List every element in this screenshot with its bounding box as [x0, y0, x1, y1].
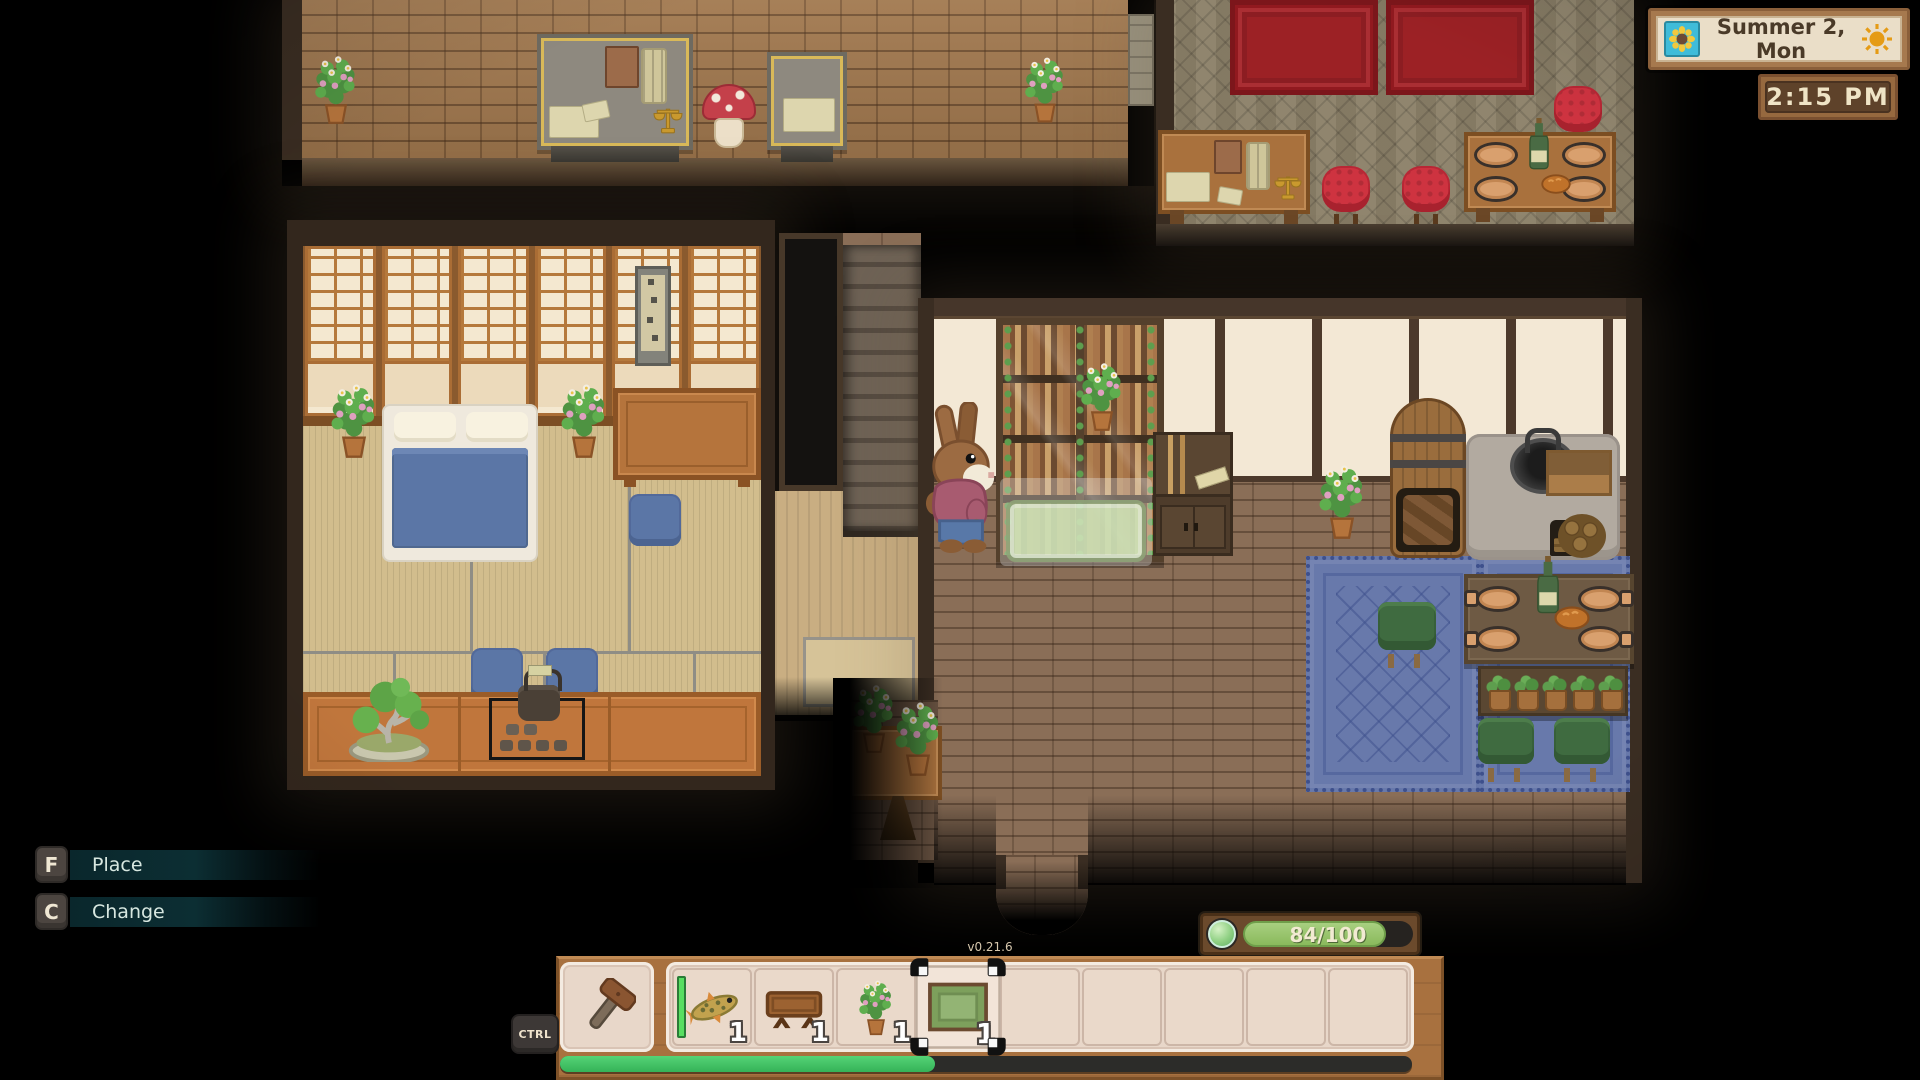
ctrl-key: CTRL — [511, 1014, 559, 1054]
tea-cups — [500, 740, 513, 751]
cup — [1464, 590, 1479, 607]
shoji-lower — [461, 364, 526, 407]
exit-doorway[interactable] — [996, 855, 1088, 935]
stool-cushion — [1402, 166, 1450, 212]
tool-slot[interactable] — [560, 962, 654, 1052]
flower-pot-plant — [1316, 438, 1368, 564]
selection-corner — [910, 958, 928, 976]
progress-fill — [560, 1056, 935, 1072]
red-rug — [1230, 0, 1378, 95]
flower-pot-plant — [892, 688, 944, 788]
mushroom-decoration — [702, 84, 756, 150]
hotbar-slot-6[interactable] — [1082, 968, 1162, 1046]
potted-herb — [1487, 675, 1509, 711]
ledger-book — [605, 46, 639, 88]
loose-paper — [581, 99, 610, 122]
scroll-paper — [641, 275, 665, 351]
bedroom-interior — [303, 246, 761, 776]
barrel-hoop — [1390, 434, 1466, 442]
mushroom-stem — [714, 118, 744, 148]
shoji-lower — [385, 364, 450, 407]
date-panel: Summer 2, Mon — [1648, 8, 1910, 70]
potted-herb — [1571, 675, 1593, 711]
low-table-seam — [608, 697, 611, 771]
scroll-desk — [1158, 130, 1310, 214]
hotbar-slot-3[interactable]: 1 — [836, 968, 916, 1046]
loose-paper — [1217, 186, 1243, 206]
herb-shelf — [1478, 666, 1628, 716]
balance-scale-icon — [653, 104, 683, 138]
stool-cushion — [1554, 86, 1602, 132]
blue-rug — [1306, 556, 1480, 792]
rug-placement-preview[interactable] — [1000, 478, 1152, 566]
library-floor-strip — [302, 158, 1128, 186]
side-cabinet — [1153, 432, 1233, 556]
barrel-hoop — [1390, 460, 1466, 468]
bed-blanket — [392, 448, 528, 548]
energy-bar: 84/100 — [1200, 913, 1420, 955]
staircase — [843, 245, 921, 537]
shoji-panel — [458, 246, 529, 416]
flower-pot-plant — [850, 672, 898, 764]
dining-floor-edge — [1156, 224, 1634, 246]
display-case-artifacts — [537, 34, 693, 150]
bed — [382, 404, 538, 562]
shoji-lattice — [691, 249, 756, 364]
cup — [1619, 590, 1634, 607]
scroll-rolls — [1246, 142, 1270, 190]
stone-stove — [1466, 434, 1620, 560]
shoji-panel — [382, 246, 453, 416]
bed-pillow — [466, 412, 528, 442]
bread-icon — [1554, 606, 1590, 630]
open-book — [783, 98, 835, 132]
slot-quantity: 1 — [893, 1018, 911, 1048]
bed-pillow — [394, 412, 456, 442]
room-main — [918, 298, 1642, 883]
potted-herb — [1515, 675, 1537, 711]
flower-pot-plant — [558, 366, 610, 474]
stool-cushion — [1478, 718, 1534, 764]
green-chair — [1378, 602, 1436, 668]
corridor — [775, 233, 923, 715]
selection-corner — [988, 958, 1006, 976]
keybind-key-f: F — [35, 846, 68, 883]
red-stool — [1402, 166, 1450, 226]
wine-bottle-icon — [1528, 118, 1550, 170]
shoji-lattice — [308, 249, 373, 364]
hotbar-slot-5[interactable] — [1000, 968, 1080, 1046]
dresser-panel — [626, 401, 748, 467]
stool-cushion — [1322, 166, 1370, 212]
potted-herb — [1543, 675, 1565, 711]
scroll-rolls — [641, 48, 667, 104]
hotbar-slot-7[interactable] — [1164, 968, 1244, 1046]
shoji-lattice — [538, 249, 603, 364]
flower-pot-plant — [1022, 36, 1068, 142]
durability-bar — [677, 976, 686, 1038]
wooden-dresser — [613, 388, 761, 480]
cabinet-doors — [1160, 505, 1226, 549]
flower-pot-plant — [1078, 356, 1126, 436]
hotbar-slot-panel: 1 1 1 1 — [666, 962, 1414, 1052]
main-wall-top-band — [934, 298, 1626, 316]
display-case-book — [767, 52, 847, 150]
firewood-pile — [1558, 514, 1606, 558]
keybind-action-change: Change — [70, 897, 320, 927]
bread-icon — [1540, 174, 1572, 194]
barrel-opening — [1396, 488, 1460, 552]
hotbar-slot-9[interactable] — [1328, 968, 1408, 1046]
cabinet-bamboo-art — [1156, 435, 1230, 497]
chair-cushion — [1378, 602, 1436, 650]
flower-table — [848, 726, 942, 800]
green-stool — [1554, 718, 1610, 782]
hotbar-slot-2[interactable]: 1 — [754, 968, 834, 1046]
hotbar-slot-1[interactable]: 1 — [672, 968, 752, 1046]
flower-pot-plant — [328, 366, 380, 474]
hotbar-slot-4-selected[interactable]: 1 — [916, 966, 1001, 1049]
dining-table-lower — [1464, 574, 1634, 664]
red-stool — [1322, 166, 1370, 226]
selection-corner — [910, 1038, 928, 1056]
flower-pot-plant — [312, 36, 360, 142]
case-legs — [781, 146, 833, 162]
player-character — [924, 402, 998, 554]
room-bedroom — [287, 220, 775, 790]
table-legs — [1476, 208, 1604, 222]
ledger-book — [1214, 140, 1242, 174]
wooden-barrel — [1390, 398, 1466, 558]
bonsai-tree — [343, 674, 435, 762]
plate — [1474, 142, 1518, 168]
dining-table-upper — [1464, 132, 1616, 212]
slot-quantity: 1 — [811, 1018, 829, 1048]
version-label: v0.21.6 — [935, 940, 1045, 954]
open-book — [1166, 172, 1210, 202]
mushroom-cap — [702, 84, 756, 120]
energy-orb-icon — [1208, 920, 1236, 948]
tea-set — [489, 698, 585, 760]
library-left-wall-edge — [282, 0, 302, 160]
shoji-lattice — [461, 249, 526, 364]
game-viewport: Summer 2, Mon 2:15 PM F Place C Change 8… — [0, 0, 1920, 1080]
plate — [1474, 176, 1518, 202]
date-label: Summer 2, Mon — [1700, 15, 1862, 63]
plate — [1476, 626, 1520, 652]
hanging-scroll — [635, 266, 671, 366]
red-rug — [1386, 0, 1534, 95]
preview-green-rug — [1006, 500, 1146, 562]
potted-herb — [1599, 675, 1621, 711]
plate — [1476, 586, 1520, 612]
hotbar-slot-8[interactable] — [1246, 968, 1326, 1046]
keybind-action-place: Place — [70, 850, 320, 880]
room-dining — [1156, 0, 1634, 246]
green-stool — [1478, 718, 1534, 782]
keybind-key-c: C — [35, 893, 68, 930]
stool-cushion — [1554, 718, 1610, 764]
low-table-seam — [458, 697, 461, 771]
cup — [1464, 631, 1479, 648]
hammer-icon — [578, 978, 636, 1036]
time-panel: 2:15 PM — [1758, 74, 1898, 120]
date-panel-face: Summer 2, Mon — [1656, 16, 1902, 62]
cup — [1619, 631, 1634, 648]
dresser-legs — [624, 475, 750, 487]
case-legs — [551, 146, 679, 162]
room-library — [282, 0, 1154, 186]
desk-legs — [1170, 210, 1298, 224]
floor-cushion — [629, 494, 681, 546]
energy-label: 84/100 — [1243, 923, 1413, 947]
slot-quantity: 1 — [729, 1018, 747, 1048]
season-tile — [1664, 21, 1700, 57]
shoji-lattice — [385, 249, 450, 364]
progress-bar — [560, 1056, 1412, 1072]
dark-doorway — [779, 233, 843, 491]
stone-pillar — [1128, 14, 1154, 106]
plate — [1562, 142, 1606, 168]
doorway-fade — [996, 855, 1088, 935]
selection-corner — [988, 1038, 1006, 1056]
balance-scale-icon — [1274, 172, 1302, 204]
scroll-calligraphy — [648, 279, 654, 285]
stove-wood-panel — [1546, 450, 1612, 496]
sunflower-icon — [1669, 26, 1695, 52]
sun-icon — [1862, 24, 1892, 54]
time-label: 2:15 PM — [1765, 81, 1891, 113]
tea-kettle — [518, 685, 560, 721]
